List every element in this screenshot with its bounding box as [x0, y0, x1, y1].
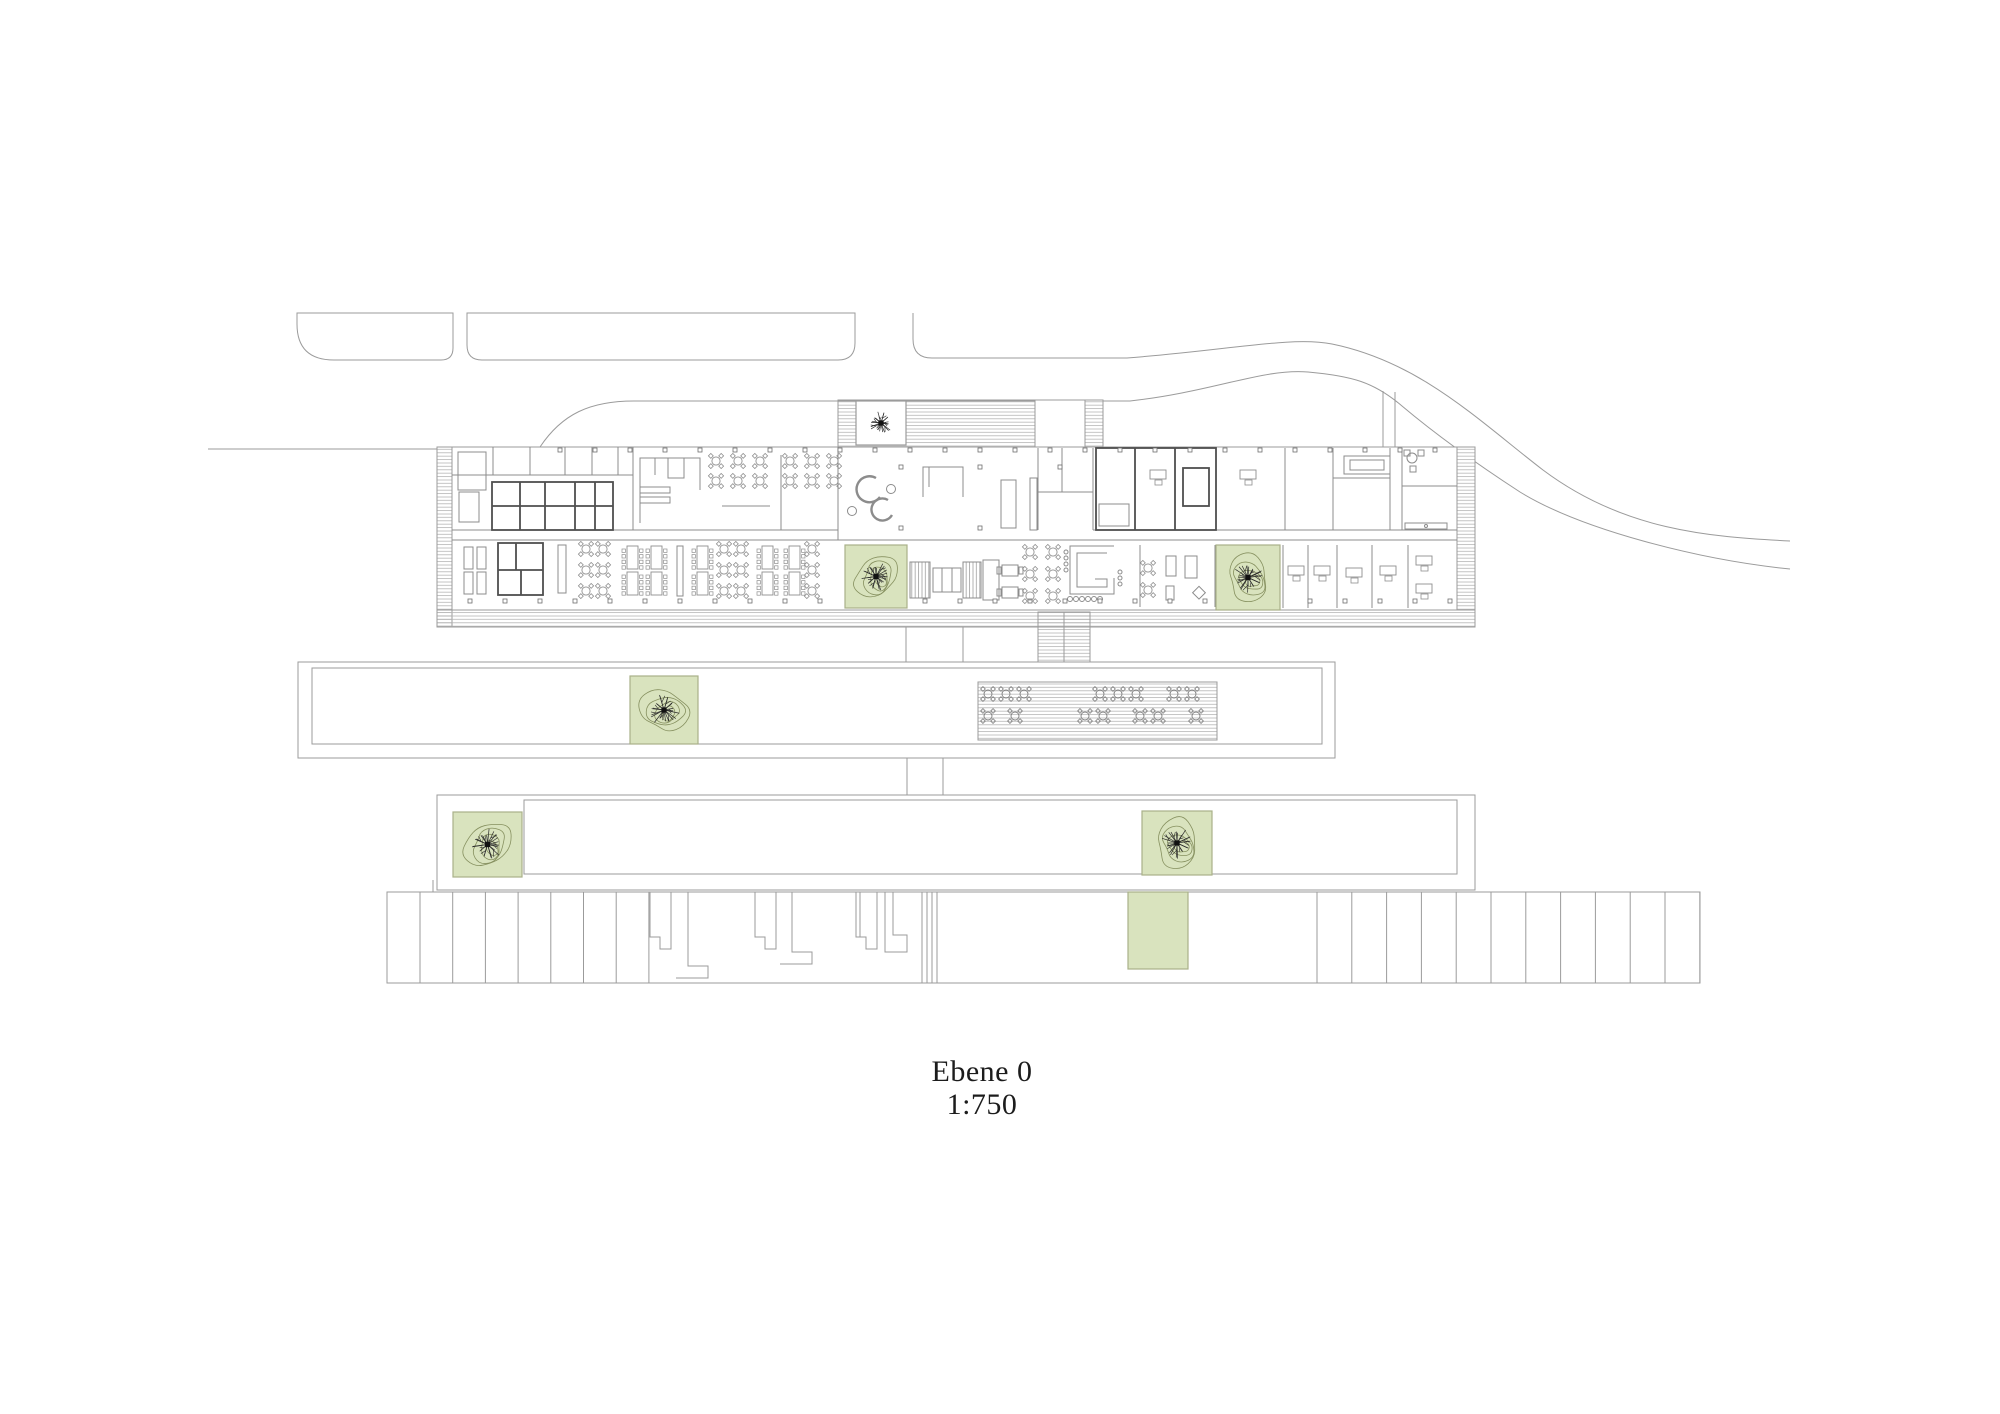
atrium-tree-west	[845, 545, 907, 608]
drawing-level-label: Ebene 0	[932, 1055, 1033, 1088]
south-walkway-hatch	[437, 610, 1475, 627]
parking-row	[387, 880, 1700, 983]
road-block-west	[297, 313, 453, 360]
floor-plan-drawing: Ebene 0 1:750	[0, 0, 2000, 1414]
west-gallery-hatch	[437, 447, 452, 627]
floor-plan-sheet: Ebene 0 1:750	[0, 0, 2000, 1414]
east-gallery-hatch	[1457, 447, 1475, 610]
turnstile-icon	[910, 562, 930, 598]
plaza-courtyard-tree	[856, 401, 906, 445]
atrium-tree-east	[1216, 545, 1280, 610]
bar-building-2	[298, 662, 1335, 758]
bar-building-3	[437, 795, 1475, 890]
main-building-outline	[437, 447, 1475, 627]
turnstile-icon	[963, 562, 981, 598]
plaza-ramp	[1085, 400, 1103, 448]
bar3-inner	[524, 800, 1457, 874]
bar3-tree-west	[453, 812, 522, 877]
link-bar2-to-bar3	[907, 758, 943, 795]
link-bridge-west	[906, 627, 963, 662]
drawing-scale-label: 1:750	[947, 1088, 1018, 1121]
road-block-mid	[467, 313, 855, 360]
parking-green-patch	[1128, 892, 1188, 969]
bar2-tree	[630, 676, 698, 744]
main-building	[437, 447, 1475, 627]
bar3-tree-east	[1142, 811, 1212, 875]
